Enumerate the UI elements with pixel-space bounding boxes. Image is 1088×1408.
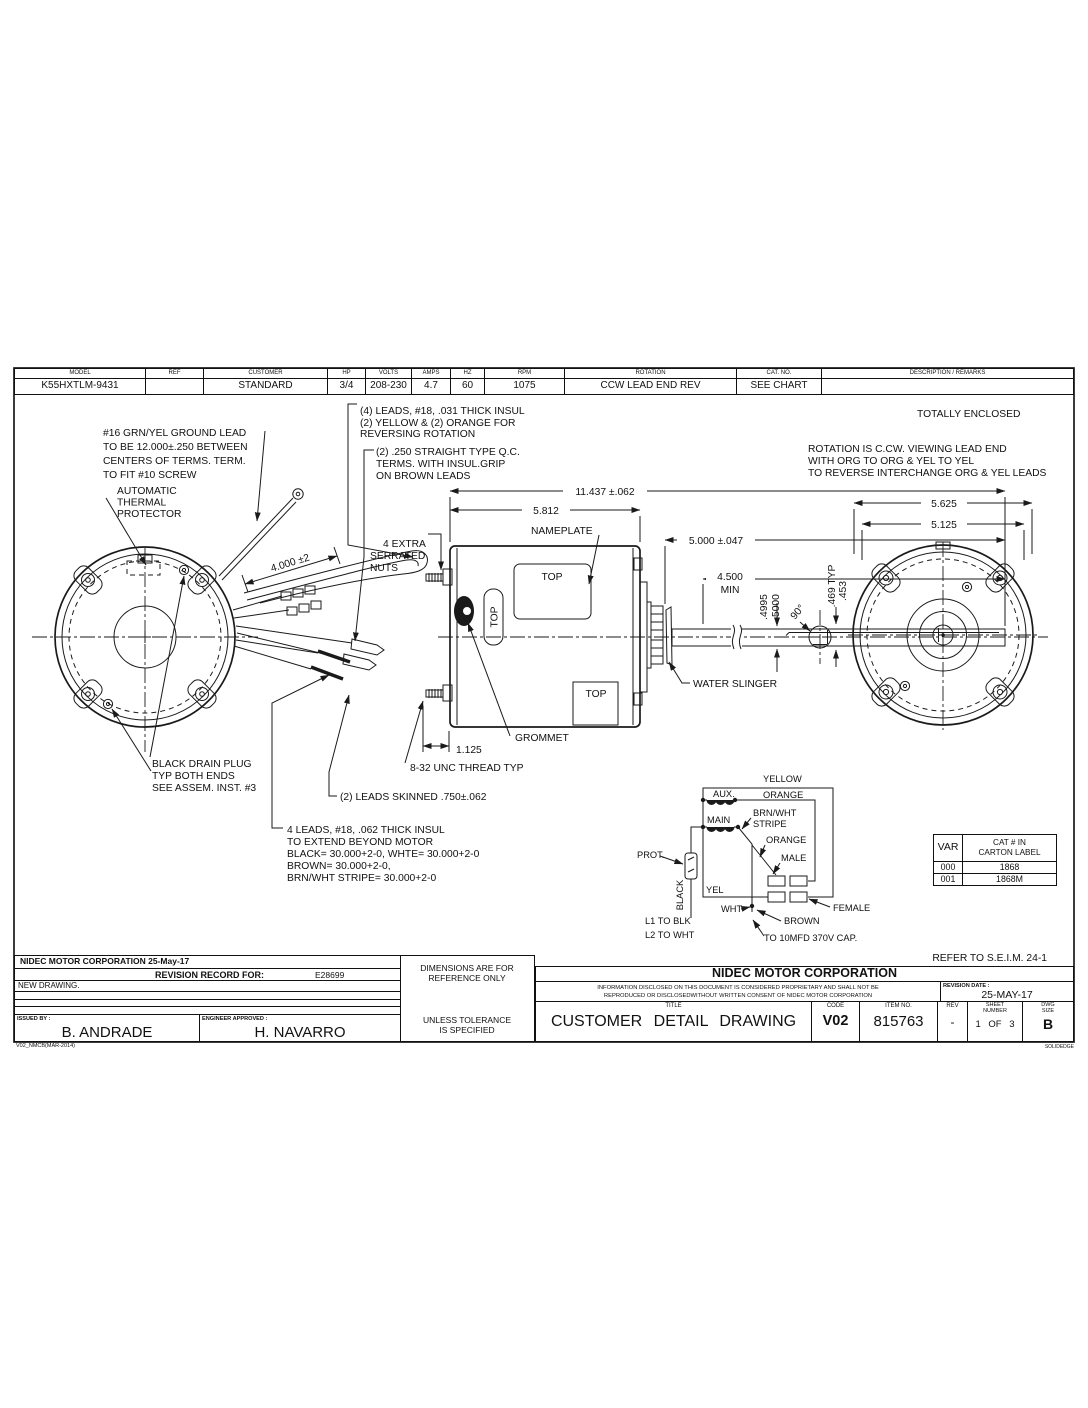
revision-entry: NEW DRAWING.: [15, 981, 400, 992]
spec-col-customer: CUSTOMER STANDARD: [204, 369, 328, 394]
issued-by-cell: ISSUED BY : B. ANDRADE: [15, 1015, 200, 1041]
top-marking: TOP: [542, 572, 563, 583]
var-table: VAR CAT # IN CARTON LABEL 000 1868 001 1…: [933, 834, 1057, 886]
var-cat-header: CAT # IN: [963, 838, 1056, 848]
sheet-value: 1 OF 3: [968, 1019, 1022, 1030]
dim-overall: 11.437 ±.062: [575, 487, 635, 498]
cat-value: 1868M: [963, 874, 1056, 885]
top-marking: TOP: [490, 606, 501, 627]
wire-label-brown: BROWN: [784, 916, 820, 926]
var-value: 001: [934, 874, 963, 885]
note-qc-terms: TERMS. WITH INSUL.GRIP: [376, 459, 505, 470]
spec-value: 208-230: [366, 379, 411, 394]
code-cell: CODE V02: [812, 1002, 860, 1041]
engineering-drawing-canvas: 4.000 ±2 TOP TOP TOP: [0, 0, 1088, 1408]
spec-value: STANDARD: [204, 379, 327, 394]
note-leads-skinned: (2) LEADS SKINNED .750±.062: [340, 792, 487, 803]
note-serrated: SERRATED: [370, 551, 425, 562]
note-ground-lead: #16 GRN/YEL GROUND LEAD: [103, 428, 246, 439]
item-cell: ITEM NO. 815763: [860, 1002, 938, 1041]
rev-label: REV: [938, 1002, 967, 1010]
spec-col-model: MODEL K55HXTLM-9431: [15, 369, 146, 394]
rev-cell: REV -: [938, 1002, 968, 1041]
company-name: NIDEC MOTOR CORPORATION: [536, 967, 1073, 982]
ring-terminal: [293, 489, 303, 499]
winding-label-main: MAIN: [707, 815, 730, 825]
revision-entry-empty: [15, 1000, 400, 1008]
spec-col-rotation: ROTATION CCW LEAD END REV: [565, 369, 737, 394]
note-rotation: ROTATION IS C.CW. VIEWING LEAD END: [808, 444, 1007, 455]
item-number: 815763: [860, 1013, 937, 1030]
title-block: NIDEC MOTOR CORPORATION INFORMATION DISC…: [535, 966, 1074, 1042]
note-qc-terms: (2) .250 STRAIGHT TYPE Q.C.: [376, 447, 520, 458]
spec-value: 60: [451, 379, 484, 394]
spec-label: ROTATION: [565, 369, 736, 379]
spec-label: REF: [146, 369, 203, 379]
legal-text: INFORMATION DISCLOSED ON THIS DOCUMENT I…: [536, 984, 940, 992]
spec-value: CCW LEAD END REV: [565, 379, 736, 394]
company-date: NIDEC MOTOR CORPORATION 25-May-17: [15, 956, 400, 969]
revision-entry-empty: [15, 992, 400, 1000]
cad-system-label: SOLIDEDGE: [1014, 1044, 1074, 1050]
winding-label-aux: AUX.: [713, 789, 735, 799]
var-cat-header: CARTON LABEL: [963, 848, 1056, 858]
dim-flat1: .469 TYP: [827, 565, 838, 608]
line-label-l1: L1 TO BLK: [645, 916, 691, 926]
note-leads4-bottom: BLACK= 30.000+2-0, WHTE= 30.000+2-0: [287, 849, 480, 860]
note-leads4-bottom: BRN/WHT STRIPE= 30.000+2-0: [287, 873, 436, 884]
dim-dia-inner: 5.125: [931, 520, 957, 531]
form-code: V02_NMCB(MAR-2014): [16, 1043, 75, 1049]
note-rotation: WITH ORG TO ORG & YEL TO YEL: [808, 456, 974, 467]
female-terminal: [790, 876, 807, 886]
engineer-approved-label: ENGINEER APPROVED :: [202, 1016, 267, 1022]
size-value: B: [1023, 1016, 1073, 1032]
terminal-label-female: FEMALE: [833, 903, 870, 913]
dim-flat2: .453: [838, 581, 849, 601]
male-terminal: [768, 892, 785, 902]
title-label: TITLE: [536, 1002, 811, 1010]
spec-label: HP: [328, 369, 365, 379]
spec-label: HZ: [451, 369, 484, 379]
spec-label: RPM: [485, 369, 564, 379]
cat-value: 1868: [963, 862, 1056, 873]
thru-bolt-stud: [426, 558, 642, 705]
wire-label-brnwht: BRN/WHT: [753, 808, 797, 818]
note-thermal: AUTOMATIC: [117, 486, 177, 497]
wire-label-yel: YEL: [706, 885, 724, 895]
note-serrated: NUTS: [370, 563, 398, 574]
spec-col-catno: CAT. NO. SEE CHART: [737, 369, 822, 394]
var-value: 000: [934, 862, 963, 873]
spec-label: CUSTOMER: [204, 369, 327, 379]
revision-entry-empty: [15, 1007, 400, 1015]
revision-date-label: REVISION DATE :: [943, 983, 990, 989]
note-thread: 8-32 UNC THREAD TYP: [410, 763, 524, 774]
spec-col-rpm: RPM 1075: [485, 369, 565, 394]
shaft-end-view: 5.625 5.125: [848, 496, 1040, 730]
spec-value: [146, 379, 203, 394]
water-slinger-graphic: [666, 607, 672, 665]
tolerance-note-block: DIMENSIONS ARE FOR REFERENCE ONLY UNLESS…: [400, 955, 535, 1042]
dim-stud: 1.125: [456, 745, 482, 756]
revision-date-cell: REVISION DATE : 25-MAY-17: [941, 982, 1073, 1001]
dim-min: MIN: [721, 585, 740, 596]
spec-value: 3/4: [328, 379, 365, 394]
spec-value: 1075: [485, 379, 564, 394]
tolerance-note: IS SPECIFIED: [401, 1025, 534, 1035]
issued-by-label: ISSUED BY :: [17, 1016, 50, 1022]
note-leads4-top: (4) LEADS, #18, .031 THICK INSUL: [360, 406, 525, 417]
spec-col-description: DESCRIPTION / REMARKS: [822, 369, 1073, 394]
lead-wires: [219, 489, 427, 679]
note-drain-plug: BLACK DRAIN PLUG: [152, 759, 252, 770]
spec-col-volts: VOLTS 208-230: [366, 369, 412, 394]
note-drain-plug: TYP BOTH ENDS: [152, 771, 235, 782]
main-winding: [707, 827, 734, 832]
title-cell: TITLE CUSTOMER DETAIL DRAWING: [536, 1002, 812, 1041]
wire-label-brnwht: STRIPE: [753, 819, 787, 829]
note-leads4-top: (2) YELLOW & (2) ORANGE FOR: [360, 418, 515, 429]
note-ground-lead: TO BE 12.000±.250 BETWEEN: [103, 442, 248, 453]
note-grommet: GROMMET: [515, 733, 569, 744]
size-label: SIZE: [1023, 1009, 1073, 1015]
revision-number: E28699: [315, 970, 344, 980]
dim-angle: 90°: [789, 603, 807, 622]
spec-value: K55HXTLM-9431: [15, 379, 145, 394]
code-label: CODE: [812, 1002, 859, 1010]
thermal-protector-symbol: [685, 853, 697, 879]
spade-terminals: [343, 639, 384, 670]
revision-record-label: REVISION RECORD FOR:: [155, 970, 264, 980]
dim-lead-length: 4.000 ±2: [242, 547, 340, 592]
spec-col-hp: HP 3/4: [328, 369, 366, 394]
item-label: ITEM NO.: [860, 1002, 937, 1010]
var-row: 000 1868: [934, 862, 1056, 874]
female-terminal: [790, 892, 807, 902]
rev-value: -: [938, 1015, 967, 1029]
wire-label-wht: WHT: [721, 904, 742, 914]
sheet-label: NUMBER: [968, 1009, 1022, 1015]
dim-shaft-dia-lo: .5000: [771, 594, 782, 620]
note-leads4-bottom: BROWN= 30.000+2-0,: [287, 861, 391, 872]
note-qc-terms: ON BROWN LEADS: [376, 471, 471, 482]
dimensions-note: DIMENSIONS ARE FOR: [401, 963, 534, 973]
terminal-label-male: MALE: [781, 853, 806, 863]
aux-winding: [707, 800, 734, 805]
note-ground-lead: TO FIT #10 SCREW: [103, 470, 197, 481]
drawing-title: CUSTOMER DETAIL DRAWING: [536, 1013, 811, 1031]
note-nameplate: NAMEPLATE: [531, 526, 593, 537]
size-cell: DWG SIZE B: [1023, 1002, 1073, 1041]
tolerance-note: UNLESS TOLERANCE: [401, 1015, 534, 1025]
capacitor-note: TO 10MFD 370V CAP.: [764, 933, 857, 943]
sheet-cell: SHEET NUMBER 1 OF 3: [968, 1002, 1023, 1041]
note-totally-enclosed: TOTALLY ENCLOSED: [917, 409, 1020, 420]
note-leads4-bottom: 4 LEADS, #18, .062 THICK INSUL: [287, 825, 445, 836]
spec-col-hz: HZ 60: [451, 369, 485, 394]
spec-value: [822, 379, 1073, 394]
dimensions-note: REFERENCE ONLY: [401, 973, 534, 983]
var-col-header: VAR: [934, 835, 963, 861]
note-serrated: 4 EXTRA: [383, 539, 426, 550]
revision-block: NIDEC MOTOR CORPORATION 25-May-17 REVISI…: [14, 955, 401, 1042]
var-row: 001 1868M: [934, 874, 1056, 885]
wire-label-orange: ORANGE: [763, 790, 803, 800]
side-view-dimensions: 11.437 ±.062 5.812 5.000 ±.047 4.500 MIN…: [423, 484, 1005, 756]
spec-value: 4.7: [412, 379, 450, 394]
dim-shaft-dia-hi: .4995: [759, 594, 770, 620]
spec-col-amps: AMPS 4.7: [412, 369, 451, 394]
spec-label: VOLTS: [366, 369, 411, 379]
qc-terminals: [281, 586, 321, 615]
note-thermal: PROTECTOR: [117, 509, 181, 520]
note-water-slinger: WATER SLINGER: [693, 679, 777, 690]
note-rotation: TO REVERSE INTERCHANGE ORG & YEL LEADS: [808, 468, 1047, 479]
note-thermal: THERMAL: [117, 498, 166, 509]
wire-label-black: BLACK: [675, 879, 685, 910]
dim-body: 5.812: [533, 506, 559, 517]
spec-col-ref: REF: [146, 369, 204, 394]
note-leads4-top: REVERSING ROTATION: [360, 429, 475, 440]
wire-label-orange2: ORANGE: [766, 835, 806, 845]
code-value: V02: [812, 1013, 859, 1029]
spec-table: MODEL K55HXTLM-9431 REF CUSTOMER STANDAR…: [14, 368, 1074, 395]
dim-shaft-min: 4.500: [717, 572, 743, 583]
spec-label: MODEL: [15, 369, 145, 379]
dim-label: 4.000 ±2: [270, 552, 312, 574]
dim-dia-outer: 5.625: [931, 499, 957, 510]
spec-label: AMPS: [412, 369, 450, 379]
spec-value: SEE CHART: [737, 379, 821, 394]
wiring-schematic: YELLOW AUX. ORANGE MAIN BRN/WHT STRIPE O…: [637, 774, 870, 943]
male-terminal: [768, 876, 785, 886]
wire-label-yellow: YELLOW: [763, 774, 802, 784]
legal-text: REPRODUCED OR DISCLOSEDWITHOUT WRITTEN C…: [536, 992, 940, 1000]
dim-shaft-ext: 5.000 ±.047: [689, 536, 744, 547]
spec-label: CAT. NO.: [737, 369, 821, 379]
note-drain-plug: SEE ASSEM. INST. #3: [152, 783, 256, 794]
line-label-l2: L2 TO WHT: [645, 930, 695, 940]
protector-label: PROT.: [637, 850, 664, 860]
engineer-cell: ENGINEER APPROVED : H. NAVARRO: [200, 1015, 400, 1041]
spec-label: DESCRIPTION / REMARKS: [822, 369, 1073, 379]
note-ground-lead: CENTERS OF TERMS. TERM.: [103, 456, 246, 467]
note-refer: REFER TO S.E.I.M. 24-1: [932, 953, 1047, 964]
top-marking: TOP: [586, 689, 607, 700]
note-leads4-bottom: TO EXTEND BEYOND MOTOR: [287, 837, 433, 848]
skinned-lead: [311, 667, 343, 679]
var-header-row: VAR CAT # IN CARTON LABEL: [934, 835, 1056, 862]
skinned-lead: [318, 651, 350, 662]
